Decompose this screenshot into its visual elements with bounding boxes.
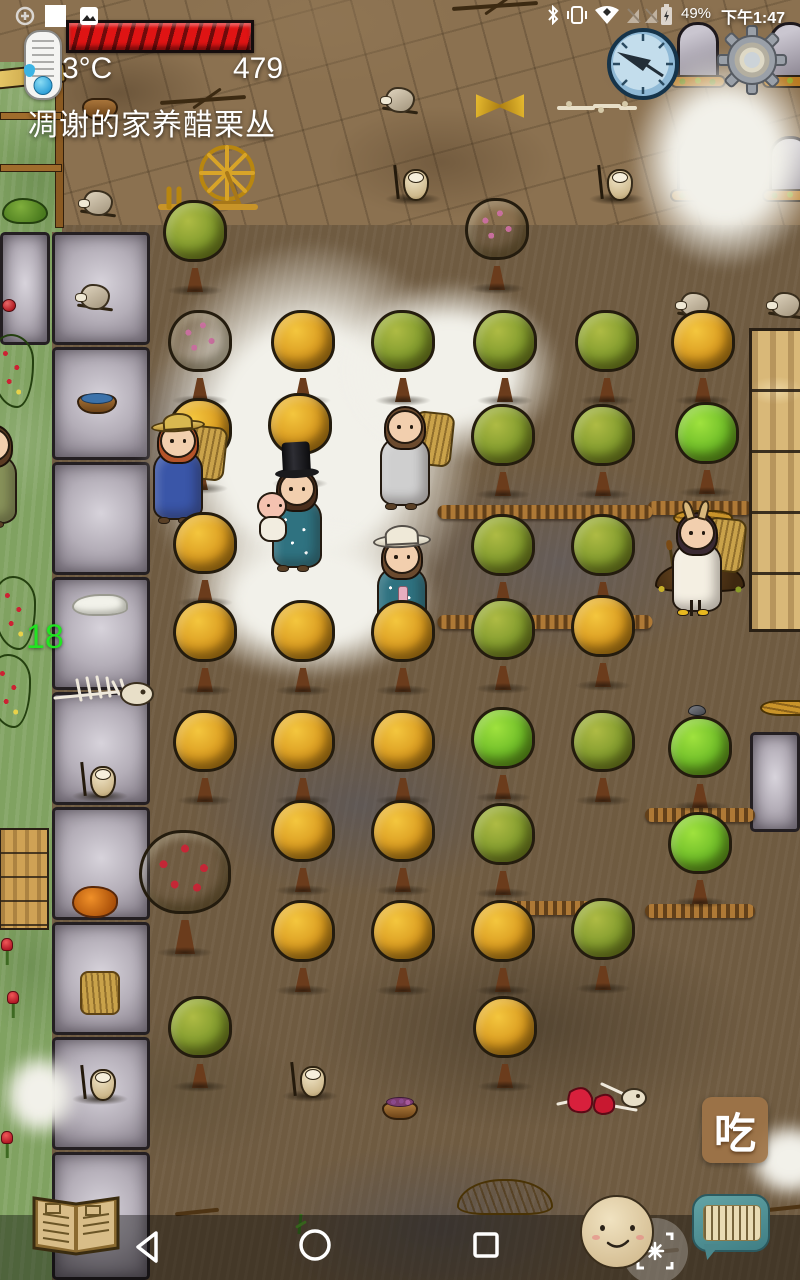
animal-skeleton[interactable] bbox=[47, 668, 163, 712]
stone-road-tile[interactable] bbox=[0, 232, 50, 345]
plank-wall[interactable] bbox=[749, 328, 800, 632]
battery-charging-icon bbox=[660, 4, 673, 26]
perched-bird[interactable] bbox=[280, 1056, 340, 1102]
withered-gooseberry-bush[interactable] bbox=[258, 310, 348, 406]
gooseberry-bush[interactable] bbox=[458, 598, 548, 694]
gooseberry-bush-with-berries[interactable] bbox=[452, 198, 542, 294]
withered-gooseberry-bush[interactable] bbox=[160, 512, 250, 608]
wifi-icon bbox=[594, 4, 620, 26]
stone-road-tile[interactable] bbox=[750, 732, 800, 832]
settings-gear-button[interactable] bbox=[714, 22, 790, 98]
carried-baby bbox=[255, 492, 295, 544]
white-cloth[interactable] bbox=[70, 590, 130, 616]
back-button[interactable] bbox=[128, 1227, 164, 1267]
clock-time: 下午1:47 bbox=[721, 4, 785, 28]
withered-gooseberry-bush[interactable] bbox=[658, 310, 748, 406]
withered-gooseberry-bush[interactable] bbox=[358, 710, 448, 806]
bluetooth-icon bbox=[546, 5, 560, 25]
fresh-gooseberry-bush[interactable] bbox=[655, 716, 745, 812]
recents-button[interactable] bbox=[469, 1228, 503, 1262]
perched-bird[interactable] bbox=[70, 1059, 130, 1105]
vibrate-icon bbox=[566, 5, 588, 25]
player-character[interactable] bbox=[249, 432, 345, 572]
red-flower[interactable] bbox=[0, 935, 16, 965]
temperature-value: 3°C bbox=[62, 52, 112, 86]
dry-branch[interactable] bbox=[452, 0, 542, 18]
perched-bird[interactable] bbox=[70, 756, 130, 802]
sun-hat bbox=[373, 532, 432, 549]
stone-with-tools[interactable] bbox=[76, 186, 120, 218]
wood-floor[interactable] bbox=[0, 828, 49, 930]
gooseberry-bush[interactable] bbox=[558, 710, 648, 806]
screenshot-square-icon bbox=[45, 5, 66, 27]
red-flower[interactable] bbox=[4, 988, 22, 1018]
age-label: 18 bbox=[26, 618, 64, 657]
straw-pile[interactable] bbox=[758, 694, 800, 716]
stone-with-tools[interactable] bbox=[764, 288, 800, 320]
chat-keyboard-button[interactable] bbox=[692, 1194, 770, 1252]
character-head bbox=[679, 516, 715, 550]
gooseberry-bush[interactable] bbox=[150, 200, 240, 296]
thermometer-ticks bbox=[32, 40, 54, 80]
berry-vine[interactable] bbox=[0, 650, 33, 728]
gooseberry-bush[interactable] bbox=[458, 404, 548, 500]
raw-meat-chunk[interactable] bbox=[70, 880, 120, 918]
withered-gooseberry-bush[interactable] bbox=[558, 595, 648, 691]
withered-gooseberry-bush[interactable] bbox=[458, 900, 548, 996]
shoe bbox=[297, 565, 309, 572]
fruit-tree[interactable] bbox=[125, 830, 245, 958]
fresh-gooseberry-bush[interactable] bbox=[458, 707, 548, 803]
red-flower[interactable] bbox=[0, 1128, 16, 1158]
shoe bbox=[277, 565, 289, 572]
gooseberry-bush[interactable] bbox=[458, 514, 548, 610]
withered-gooseberry-bush[interactable] bbox=[258, 600, 348, 696]
perched-bird[interactable] bbox=[383, 159, 443, 205]
wheat-sheaf[interactable] bbox=[476, 90, 524, 120]
fresh-gooseberry-bush[interactable] bbox=[655, 812, 745, 908]
gooseberry-bush[interactable] bbox=[155, 996, 245, 1092]
game-screen: 3°C 479 凋谢的家养醋栗丛 18 49% 下午1:47 bbox=[0, 0, 800, 1280]
data-saver-icon bbox=[15, 6, 35, 26]
player-character[interactable] bbox=[357, 370, 453, 510]
battery-percent: 49% bbox=[681, 5, 711, 22]
hay-bale[interactable] bbox=[78, 967, 122, 1015]
withered-gooseberry-bush[interactable] bbox=[358, 800, 448, 896]
wooden-stick[interactable] bbox=[765, 1202, 800, 1214]
crafting-book-button[interactable] bbox=[26, 1190, 126, 1258]
no-sim-icon bbox=[626, 5, 660, 25]
withered-gooseberry-bush[interactable] bbox=[258, 900, 348, 996]
thermometer-gauge bbox=[24, 30, 62, 100]
flint-stone[interactable] bbox=[687, 702, 707, 716]
shoe bbox=[697, 609, 709, 616]
thermometer-bulb bbox=[34, 76, 53, 95]
red-fruit[interactable] bbox=[1, 296, 17, 312]
keyboard-icon bbox=[703, 1205, 761, 1241]
player-character[interactable] bbox=[0, 388, 40, 528]
withered-gooseberry-bush[interactable] bbox=[160, 600, 250, 696]
withered-gooseberry-bush[interactable] bbox=[358, 600, 448, 696]
emote-face-button[interactable] bbox=[580, 1195, 654, 1269]
hover-caption: 凋谢的家养醋栗丛 bbox=[28, 100, 276, 144]
gooseberry-bush[interactable] bbox=[558, 898, 648, 994]
shoe bbox=[0, 521, 4, 528]
gooseberry-bush[interactable] bbox=[562, 310, 652, 406]
withered-gooseberry-bush[interactable] bbox=[258, 800, 348, 896]
snow-patch bbox=[0, 1050, 80, 1140]
photo-icon bbox=[79, 6, 99, 26]
food-counter: 479 bbox=[233, 52, 283, 86]
withered-gooseberry-bush[interactable] bbox=[258, 710, 348, 806]
player-character[interactable] bbox=[130, 384, 226, 524]
withered-gooseberry-bush[interactable] bbox=[160, 710, 250, 806]
shoe bbox=[677, 609, 689, 616]
water-bowl[interactable] bbox=[76, 388, 118, 414]
stone-with-tools[interactable] bbox=[73, 280, 117, 312]
gooseberry-bush[interactable] bbox=[460, 310, 550, 406]
gooseberry-bush[interactable] bbox=[458, 803, 548, 899]
straw-heap[interactable] bbox=[455, 1171, 555, 1215]
home-button[interactable] bbox=[297, 1227, 333, 1263]
eat-button[interactable]: 吃 bbox=[702, 1097, 768, 1163]
withered-gooseberry-bush[interactable] bbox=[460, 996, 550, 1092]
stone-with-tools[interactable] bbox=[378, 83, 422, 115]
meat-and-bones[interactable] bbox=[552, 1076, 648, 1120]
player-character[interactable] bbox=[649, 476, 745, 616]
compass-clock-button[interactable] bbox=[605, 26, 681, 102]
gooseberry-bush[interactable] bbox=[558, 404, 648, 500]
berry-basket[interactable] bbox=[381, 1094, 419, 1120]
withered-gooseberry-bush[interactable] bbox=[358, 900, 448, 996]
character-head bbox=[387, 410, 423, 444]
